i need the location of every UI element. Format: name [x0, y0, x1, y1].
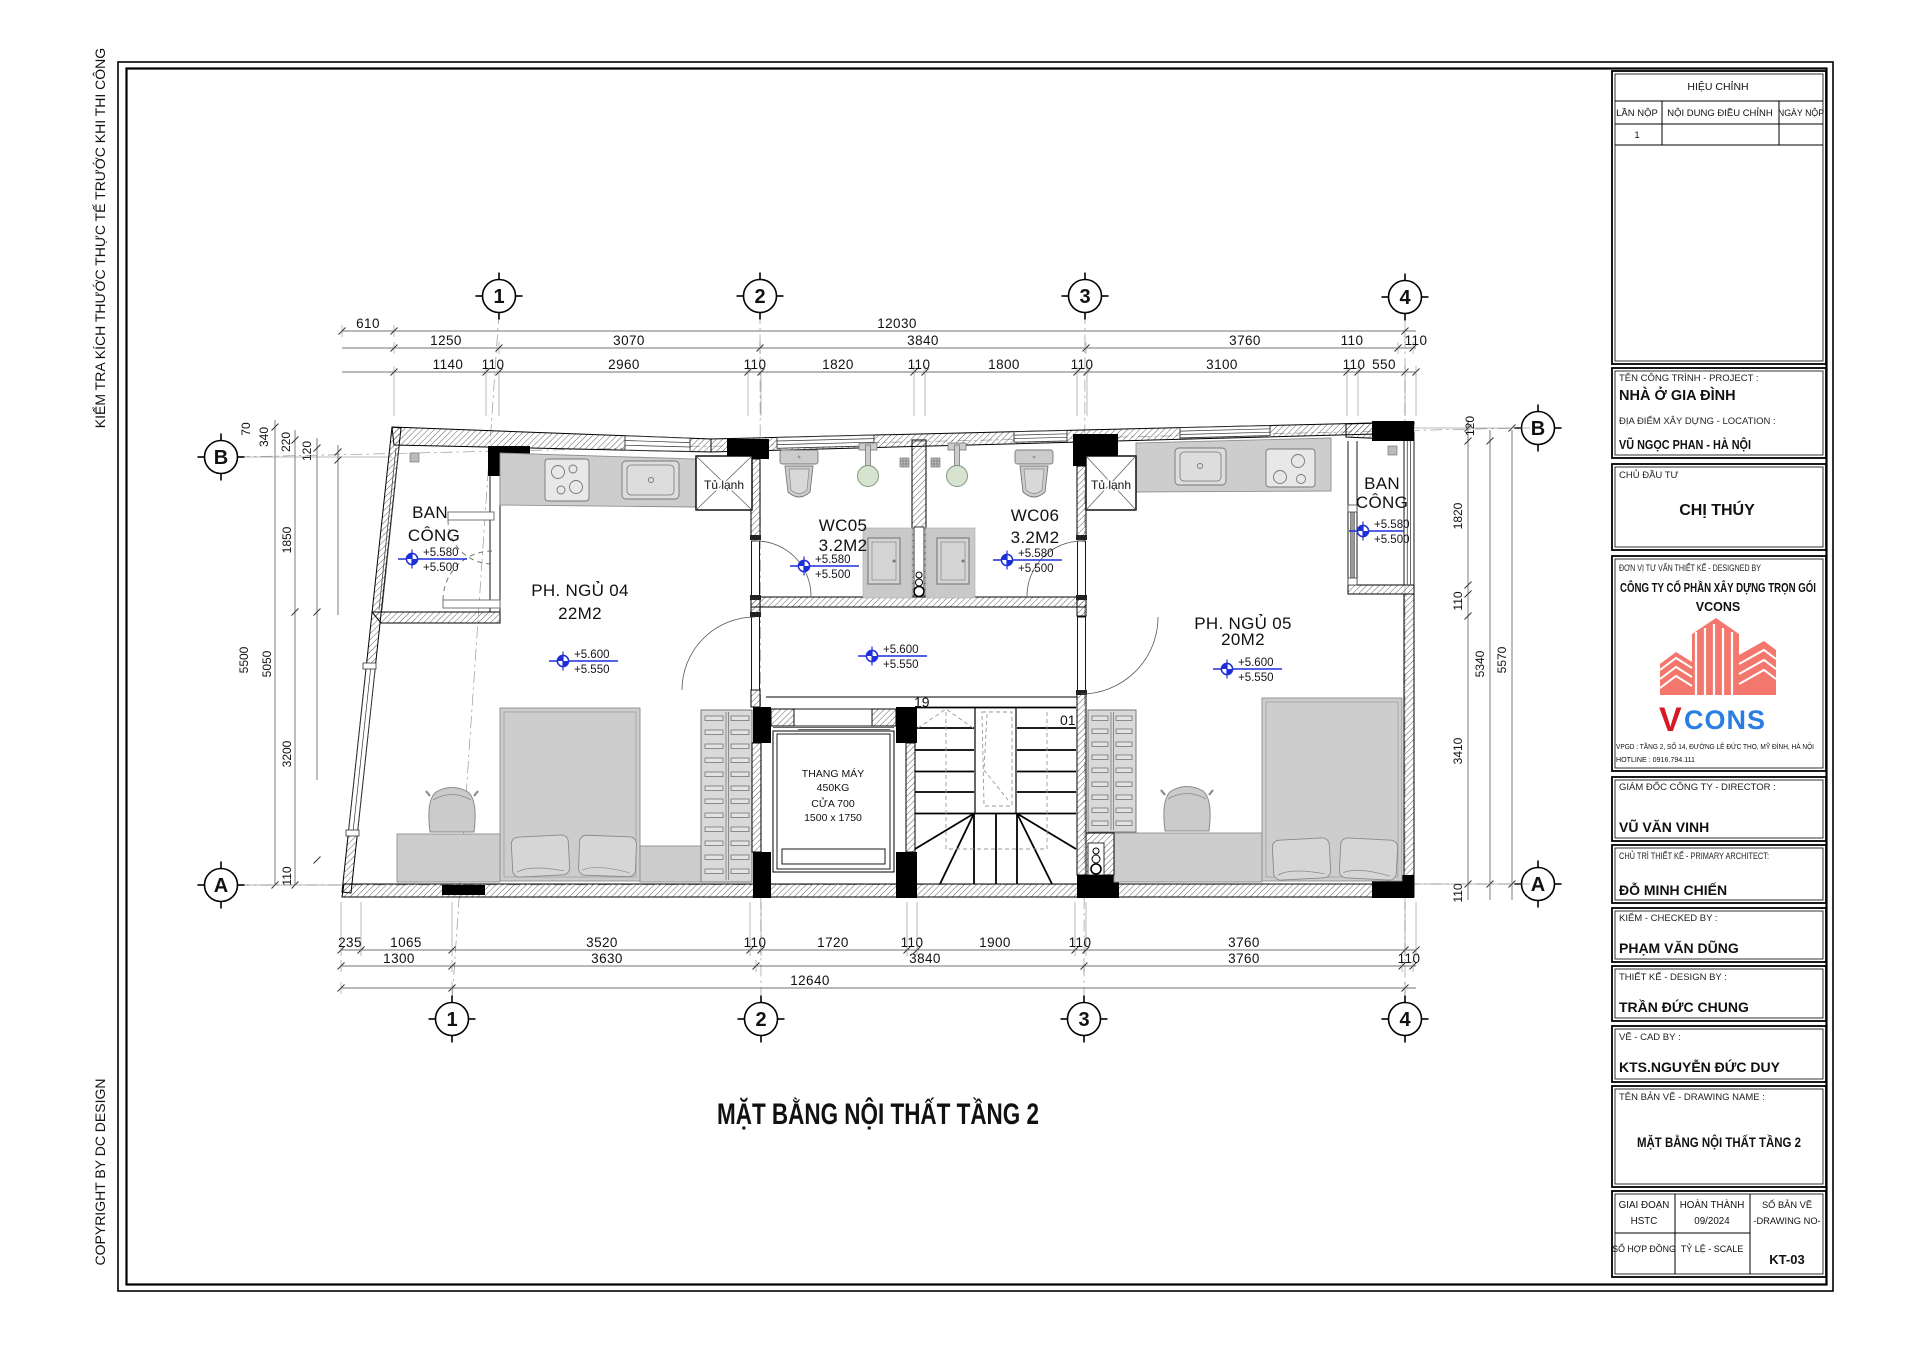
- svg-text:CHỊ THÚY: CHỊ THÚY: [1679, 500, 1755, 519]
- svg-text:WC06: WC06: [1011, 506, 1059, 525]
- svg-text:B: B: [214, 447, 228, 469]
- svg-text:KT-03: KT-03: [1769, 1252, 1804, 1267]
- svg-text:BAN: BAN: [412, 503, 448, 522]
- svg-text:SỐ HỢP ĐỒNG: SỐ HỢP ĐỒNG: [1612, 1243, 1676, 1254]
- svg-text:+5.580: +5.580: [815, 554, 851, 566]
- svg-text:+5.580: +5.580: [423, 547, 459, 559]
- svg-text:235: 235: [338, 935, 362, 950]
- svg-text:110: 110: [1405, 333, 1428, 348]
- svg-text:+5.580: +5.580: [1018, 548, 1054, 560]
- svg-text:+5.600: +5.600: [1238, 657, 1274, 669]
- svg-text:09/2024: 09/2024: [1694, 1216, 1730, 1227]
- svg-text:110: 110: [744, 935, 767, 950]
- svg-text:CÔNG TY CỔ PHẦN XÂY DỰNG TRỌN: CÔNG TY CỔ PHẦN XÂY DỰNG TRỌN GÓI: [1620, 580, 1816, 595]
- svg-text:110: 110: [1341, 333, 1364, 348]
- svg-text:A: A: [214, 875, 228, 897]
- svg-text:ĐƠN VỊ TƯ VẤN THIẾT KẾ - DESIG: ĐƠN VỊ TƯ VẤN THIẾT KẾ - DESIGNED BY: [1619, 563, 1761, 574]
- svg-text:NỘI DUNG ĐIỀU CHỈNH: NỘI DUNG ĐIỀU CHỈNH: [1667, 107, 1773, 119]
- svg-text:1800: 1800: [988, 357, 1020, 372]
- svg-text:+5.550: +5.550: [574, 664, 610, 676]
- svg-text:110: 110: [1451, 591, 1465, 610]
- svg-text:20M2: 20M2: [1221, 630, 1265, 649]
- svg-text:BAN: BAN: [1364, 474, 1400, 493]
- svg-text:610: 610: [356, 316, 380, 331]
- svg-text:CÔNG: CÔNG: [408, 526, 460, 545]
- svg-text:110: 110: [1343, 357, 1366, 372]
- svg-text:120: 120: [1463, 416, 1477, 436]
- svg-text:110: 110: [482, 357, 505, 372]
- svg-text:12640: 12640: [790, 973, 830, 988]
- svg-text:110: 110: [901, 935, 924, 950]
- svg-text:KIỂM - CHECKED BY :: KIỂM - CHECKED BY :: [1619, 912, 1718, 924]
- svg-text:3760: 3760: [1228, 951, 1260, 966]
- svg-text:1850: 1850: [280, 526, 294, 553]
- svg-text:22M2: 22M2: [558, 604, 602, 623]
- svg-text:-DRAWING NO-: -DRAWING NO-: [1753, 1216, 1820, 1226]
- svg-text:B: B: [1531, 418, 1545, 440]
- svg-text:550: 550: [1372, 357, 1396, 372]
- svg-text:HOÀN THÀNH: HOÀN THÀNH: [1680, 1200, 1745, 1211]
- svg-text:3840: 3840: [907, 333, 939, 348]
- svg-text:5050: 5050: [260, 650, 274, 677]
- svg-text:1: 1: [446, 1009, 457, 1031]
- svg-text:MẶT BẰNG NỘI THẤT TẦNG 2: MẶT BẰNG NỘI THẤT TẦNG 2: [1637, 1135, 1801, 1150]
- svg-text:+5.600: +5.600: [574, 649, 610, 661]
- svg-text:HOTLINE : 0916.794.111: HOTLINE : 0916.794.111: [1616, 756, 1695, 764]
- svg-text:3760: 3760: [1229, 333, 1261, 348]
- svg-text:CÔNG: CÔNG: [1356, 493, 1408, 512]
- svg-text:120: 120: [300, 441, 314, 461]
- svg-text:PH. NGỦ 04: PH. NGỦ 04: [531, 581, 628, 600]
- svg-text:70: 70: [239, 422, 253, 436]
- svg-text:TỶ LỆ - SCALE: TỶ LỆ - SCALE: [1681, 1243, 1744, 1254]
- svg-text:VCONS: VCONS: [1696, 600, 1740, 614]
- svg-text:PHẠM VĂN DŨNG: PHẠM VĂN DŨNG: [1619, 939, 1739, 956]
- svg-text:+5.550: +5.550: [883, 659, 919, 671]
- svg-text:110: 110: [280, 866, 294, 885]
- svg-text:GIÁM ĐỐC CÔNG TY - DIRECTOR :: GIÁM ĐỐC CÔNG TY - DIRECTOR :: [1619, 781, 1776, 793]
- svg-text:NGÀY NỘP: NGÀY NỘP: [1778, 108, 1824, 118]
- svg-text:1720: 1720: [817, 935, 849, 950]
- svg-text:+5.580: +5.580: [1374, 519, 1410, 531]
- svg-text:3840: 3840: [909, 951, 941, 966]
- svg-text:GIAI ĐOẠN: GIAI ĐOẠN: [1619, 1200, 1670, 1211]
- svg-text:THANG MÁY: THANG MÁY: [802, 767, 864, 780]
- svg-text:COPYRIGHT BY DC DESIGN: COPYRIGHT BY DC DESIGN: [92, 1079, 108, 1266]
- svg-text:TÊN BẢN VẼ - DRAWING NAME :: TÊN BẢN VẼ - DRAWING NAME :: [1619, 1091, 1765, 1103]
- svg-text:CỬA 700: CỬA 700: [811, 797, 855, 810]
- svg-text:01: 01: [1060, 712, 1076, 728]
- svg-text:340: 340: [257, 427, 271, 447]
- svg-text:220: 220: [279, 432, 293, 452]
- svg-text:+5.500: +5.500: [1018, 563, 1054, 575]
- svg-text:110: 110: [744, 357, 767, 372]
- svg-text:VŨ NGỌC PHAN - HÀ NỘI: VŨ NGỌC PHAN - HÀ NỘI: [1619, 437, 1751, 452]
- svg-text:VẼ - CAD BY :: VẼ - CAD BY :: [1619, 1032, 1681, 1043]
- svg-text:Tủ lạnh: Tủ lạnh: [704, 478, 744, 492]
- svg-text:1: 1: [493, 286, 504, 308]
- svg-text:110: 110: [1069, 935, 1092, 950]
- svg-text:2960: 2960: [608, 357, 640, 372]
- svg-text:110: 110: [1398, 951, 1421, 966]
- svg-text:1065: 1065: [390, 935, 422, 950]
- svg-text:450KG: 450KG: [817, 782, 850, 794]
- svg-text:3.2M2: 3.2M2: [1011, 528, 1060, 547]
- svg-text:3070: 3070: [613, 333, 645, 348]
- svg-text:KIỂM TRA KÍCH THƯỚC THỰC TẾ TR: KIỂM TRA KÍCH THƯỚC THỰC TẾ TRƯỚC KHI TH…: [91, 48, 108, 428]
- svg-text:5570: 5570: [1495, 646, 1509, 673]
- svg-text:2: 2: [755, 1009, 766, 1031]
- svg-text:TÊN CÔNG TRÌNH - PROJECT :: TÊN CÔNG TRÌNH - PROJECT :: [1619, 373, 1759, 384]
- svg-text:1500 x 1750: 1500 x 1750: [804, 812, 862, 824]
- svg-text:Tủ lạnh: Tủ lạnh: [1091, 478, 1131, 492]
- svg-text:3760: 3760: [1228, 935, 1260, 950]
- svg-text:1900: 1900: [979, 935, 1011, 950]
- svg-text:4: 4: [1399, 287, 1411, 309]
- svg-text:NHÀ Ở GIA ĐÌNH: NHÀ Ở GIA ĐÌNH: [1619, 386, 1736, 404]
- svg-text:+5.500: +5.500: [423, 562, 459, 574]
- svg-text:2: 2: [754, 286, 765, 308]
- svg-text:THIẾT KẾ - DESIGN BY :: THIẾT KẾ - DESIGN BY :: [1619, 972, 1727, 983]
- svg-text:5500: 5500: [237, 646, 251, 673]
- svg-text:ĐỖ MINH CHIẾN: ĐỖ MINH CHIẾN: [1619, 881, 1727, 898]
- svg-text:HSTC: HSTC: [1631, 1216, 1658, 1227]
- svg-text:3200: 3200: [280, 740, 294, 767]
- svg-text:1: 1: [1634, 130, 1639, 141]
- svg-text:SỐ BẢN VẼ: SỐ BẢN VẼ: [1762, 1199, 1812, 1210]
- svg-text:12030: 12030: [877, 316, 917, 331]
- svg-text:MẶT BẰNG NỘI THẤT TẦNG 2: MẶT BẰNG NỘI THẤT TẦNG 2: [717, 1097, 1039, 1131]
- svg-text:+5.550: +5.550: [1238, 672, 1274, 684]
- svg-text:CONS: CONS: [1684, 705, 1766, 735]
- svg-text:1820: 1820: [1451, 502, 1465, 529]
- svg-text:WC05: WC05: [819, 516, 867, 535]
- svg-text:110: 110: [908, 357, 931, 372]
- svg-text:1140: 1140: [433, 357, 464, 372]
- svg-text:3100: 3100: [1206, 357, 1238, 372]
- svg-text:+5.600: +5.600: [883, 644, 919, 656]
- svg-text:3: 3: [1078, 1009, 1089, 1031]
- svg-text:1820: 1820: [822, 357, 854, 372]
- svg-text:A: A: [1531, 874, 1545, 896]
- svg-text:110: 110: [1451, 883, 1465, 902]
- svg-text:ĐỊA ĐIỂM XÂY DỰNG - LOCATION :: ĐỊA ĐIỂM XÂY DỰNG - LOCATION :: [1619, 415, 1776, 427]
- svg-text:5340: 5340: [1473, 650, 1487, 677]
- svg-text:TRẦN ĐỨC CHUNG: TRẦN ĐỨC CHUNG: [1619, 998, 1749, 1015]
- svg-text:VŨ VĂN VINH: VŨ VĂN VINH: [1619, 818, 1709, 835]
- svg-text:19: 19: [914, 694, 930, 710]
- svg-text:VPGD : TẦNG 2, SỐ 14, ĐƯỜNG LÊ: VPGD : TẦNG 2, SỐ 14, ĐƯỜNG LÊ ĐỨC THỌ, …: [1616, 741, 1814, 751]
- svg-text:LẦN NỘP: LẦN NỘP: [1616, 108, 1658, 119]
- svg-text:HIỆU CHỈNH: HIỆU CHỈNH: [1687, 80, 1748, 93]
- svg-text:1300: 1300: [383, 951, 415, 966]
- svg-text:4: 4: [1399, 1009, 1411, 1031]
- svg-text:3: 3: [1079, 286, 1090, 308]
- svg-text:3630: 3630: [591, 951, 623, 966]
- svg-text:CHỦ ĐẦU TƯ: CHỦ ĐẦU TƯ: [1619, 469, 1679, 481]
- svg-text:KTS.NGUYỄN ĐỨC DUY: KTS.NGUYỄN ĐỨC DUY: [1619, 1058, 1781, 1075]
- svg-text:3.2M2: 3.2M2: [819, 536, 868, 555]
- svg-text:+5.500: +5.500: [815, 569, 851, 581]
- svg-text:1250: 1250: [430, 333, 462, 348]
- svg-text:3410: 3410: [1451, 737, 1465, 764]
- svg-text:V: V: [1659, 701, 1682, 739]
- svg-text:3520: 3520: [586, 935, 618, 950]
- svg-text:+5.500: +5.500: [1374, 534, 1410, 546]
- svg-text:110: 110: [1071, 357, 1094, 372]
- svg-text:CHỦ TRÌ THIẾT KẾ - PRIMARY ARC: CHỦ TRÌ THIẾT KẾ - PRIMARY ARCHITECT:: [1619, 850, 1769, 862]
